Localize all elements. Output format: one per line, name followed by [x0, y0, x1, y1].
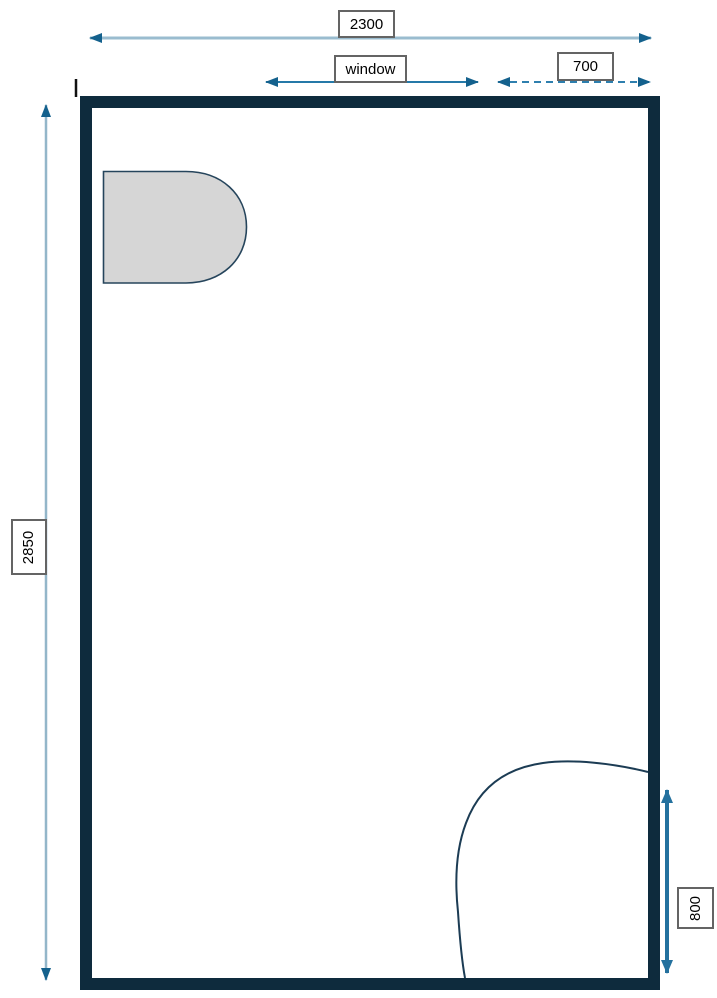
window-label-text: window [345, 62, 395, 77]
dimension-value-800: 800 [688, 895, 703, 920]
floor-plan-drawing [0, 0, 717, 998]
dimension-label-2850: 2850 [11, 519, 47, 575]
toilet-fixture [104, 172, 247, 284]
dimension-value-700: 700 [573, 59, 598, 74]
dimension-label-2300: 2300 [338, 10, 395, 38]
window-label: window [334, 55, 407, 83]
door-swing-arc [456, 761, 648, 978]
floor-plan-canvas: 2300 window 700 2850 800 [0, 0, 717, 998]
dimension-label-700: 700 [557, 52, 614, 81]
dimension-value-2850: 2850 [22, 530, 37, 563]
dimension-label-800: 800 [677, 887, 714, 929]
dimension-value-2300: 2300 [350, 17, 383, 32]
